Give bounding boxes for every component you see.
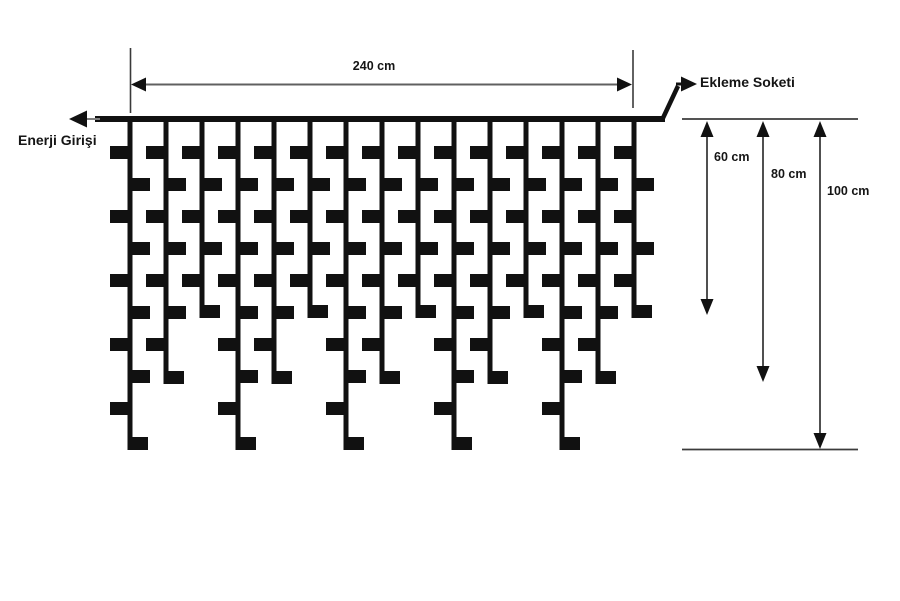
led-tab-right [632,178,654,191]
led-tab-left [218,402,240,415]
led-tab-right [524,178,546,191]
led-tab-left [182,146,204,159]
led-tab-left [434,338,456,351]
measure-down-arrowhead [814,433,827,449]
led-tab-left [362,338,384,351]
led-tab-left [110,210,132,223]
width-dimension-label: 240 cm [353,60,395,74]
led-tab-left [146,210,168,223]
led-tab-left [542,146,564,159]
led-tab-left [578,338,600,351]
width-dimension-group [131,48,634,113]
socket-arrowhead [681,77,697,92]
led-tab-left [362,210,384,223]
led-tab-left [542,402,564,415]
led-tab-left [470,146,492,159]
led-tab-right [452,178,474,191]
led-tab-left [614,210,636,223]
led-tab-right [560,370,582,383]
led-tab-left [218,146,240,159]
led-tab-right [236,178,258,191]
led-tab-left [470,338,492,351]
led-tab-left [614,146,636,159]
led-tab-right [380,242,402,255]
led-tab-left [326,146,348,159]
power-input-arrow-group [69,111,100,128]
led-tab-right [272,242,294,255]
led-tab-left [146,146,168,159]
measure-up-arrowhead [814,121,827,137]
led-tab-left [110,402,132,415]
measure-down-arrowhead [701,299,714,315]
led-tab-right [488,178,510,191]
led-tab-left [254,338,276,351]
depth-60cm-label: 60 cm [714,151,749,165]
led-tab-left [398,274,420,287]
led-tab-right [632,242,654,255]
led-tab-right [524,242,546,255]
led-tab-right [164,306,186,319]
led-tab-left [542,210,564,223]
led-tab-right [560,306,582,319]
led-tab-left [542,274,564,287]
socket-diagonal-wire [663,86,678,118]
led-tab-left [326,274,348,287]
led-tab-right [560,242,582,255]
dimension-right-arrowhead [617,78,632,92]
led-tab-left [290,210,312,223]
measure-up-arrowhead [701,121,714,137]
led-tab-foot [272,371,292,384]
led-tab-right [416,242,438,255]
led-tab-right [272,178,294,191]
led-tab-foot [488,371,508,384]
led-tab-right [236,306,258,319]
led-tab-left [110,274,132,287]
led-tab-foot [236,437,256,450]
led-tab-foot [308,305,328,318]
led-tab-right [452,306,474,319]
led-tab-right [344,306,366,319]
led-tab-left [218,338,240,351]
led-tab-right [236,370,258,383]
led-tab-right [596,306,618,319]
led-tab-right [452,242,474,255]
led-tab-left [434,210,456,223]
led-tab-left [146,274,168,287]
led-tab-left [470,274,492,287]
led-tab-right [128,370,150,383]
dimension-left-arrowhead [131,78,146,92]
led-tab-left [182,210,204,223]
led-tab-right [488,242,510,255]
led-tab-right [200,178,222,191]
led-tab-right [596,178,618,191]
led-tab-left [434,274,456,287]
led-tab-left [110,146,132,159]
led-tab-right [128,306,150,319]
led-tab-left [290,146,312,159]
depth-80cm-label: 80 cm [771,168,806,182]
led-tab-right [128,242,150,255]
led-tab-left [254,210,276,223]
extension-socket-label: Ekleme Soketi [700,75,795,90]
led-tab-foot [164,371,184,384]
led-tab-right [488,306,510,319]
led-tab-left [578,274,600,287]
led-tab-right [164,242,186,255]
led-tab-left [578,210,600,223]
led-tab-foot [560,437,580,450]
led-tab-right [452,370,474,383]
led-tab-foot [632,305,652,318]
led-tab-right [380,178,402,191]
led-tab-right [272,306,294,319]
measure-up-arrowhead [757,121,770,137]
led-tab-foot [200,305,220,318]
led-tab-left [326,210,348,223]
led-tab-right [308,242,330,255]
led-tab-right [416,178,438,191]
led-tab-foot [344,437,364,450]
led-tab-left [362,146,384,159]
led-tab-left [290,274,312,287]
led-tab-left [434,402,456,415]
depth-100cm-label: 100 cm [827,185,869,199]
led-tab-left [326,338,348,351]
led-tab-right [308,178,330,191]
led-tab-right [344,178,366,191]
led-tab-left [362,274,384,287]
led-tab-foot [596,371,616,384]
led-tab-left [182,274,204,287]
led-tab-right [200,242,222,255]
led-tab-foot [416,305,436,318]
led-tab-right [344,242,366,255]
led-tab-left [398,210,420,223]
led-tab-left [254,274,276,287]
led-tab-right [596,242,618,255]
depth-measurements-group [682,119,858,450]
power-arrowhead [69,111,87,128]
led-tab-foot [128,437,148,450]
led-tab-left [218,274,240,287]
power-input-label: Enerji Girişi [18,133,97,148]
led-tab-left [326,402,348,415]
icicle-light-diagram-page: 240 cm Enerji Girişi Ekleme Soketi 60 cm… [0,0,900,601]
led-tab-left [542,338,564,351]
led-tab-left [506,274,528,287]
led-tab-foot [452,437,472,450]
led-tab-left [254,146,276,159]
led-tab-left [614,274,636,287]
led-tab-left [506,146,528,159]
led-tab-left [110,338,132,351]
led-tab-left [218,210,240,223]
led-tab-right [380,306,402,319]
led-tab-right [236,242,258,255]
led-tab-left [434,146,456,159]
curtain-drops-group [95,116,665,450]
led-tab-foot [524,305,544,318]
led-tab-right [560,178,582,191]
led-tab-right [128,178,150,191]
led-tab-left [578,146,600,159]
led-tab-left [470,210,492,223]
led-tab-foot [380,371,400,384]
led-tab-left [146,338,168,351]
led-tab-left [398,146,420,159]
extension-socket-arrow-group [663,77,697,119]
led-tab-right [164,178,186,191]
led-tab-left [506,210,528,223]
led-tab-right [344,370,366,383]
measure-down-arrowhead [757,366,770,382]
